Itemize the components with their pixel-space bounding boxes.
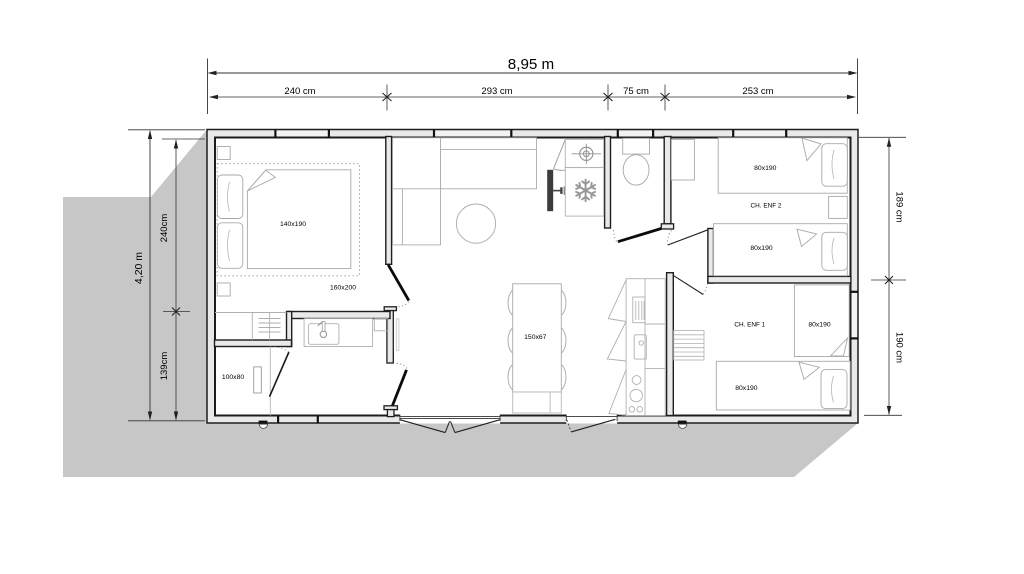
svg-text:80x190: 80x190 [750,245,773,252]
svg-text:CH. ENF 1: CH. ENF 1 [734,322,765,329]
svg-text:160x200: 160x200 [330,285,356,292]
svg-text:140x190: 140x190 [280,221,306,228]
svg-text:CH. ENF 2: CH. ENF 2 [751,203,782,210]
svg-text:100x80: 100x80 [222,374,245,381]
svg-text:80x190: 80x190 [735,385,758,392]
svg-text:150x67: 150x67 [524,334,547,341]
svg-text:4,20 m: 4,20 m [133,252,145,284]
svg-text:240 cm: 240 cm [284,86,315,97]
svg-text:240cm: 240cm [159,214,170,243]
svg-text:75 cm: 75 cm [623,86,649,97]
svg-text:8,95 m: 8,95 m [508,56,554,73]
svg-text:190 cm: 190 cm [894,332,905,363]
svg-text:139cm: 139cm [159,352,170,381]
svg-text:80x190: 80x190 [808,322,831,329]
svg-text:293 cm: 293 cm [481,86,512,97]
svg-text:253 cm: 253 cm [742,86,773,97]
svg-text:80x190: 80x190 [754,165,777,172]
svg-text:189 cm: 189 cm [894,191,905,222]
